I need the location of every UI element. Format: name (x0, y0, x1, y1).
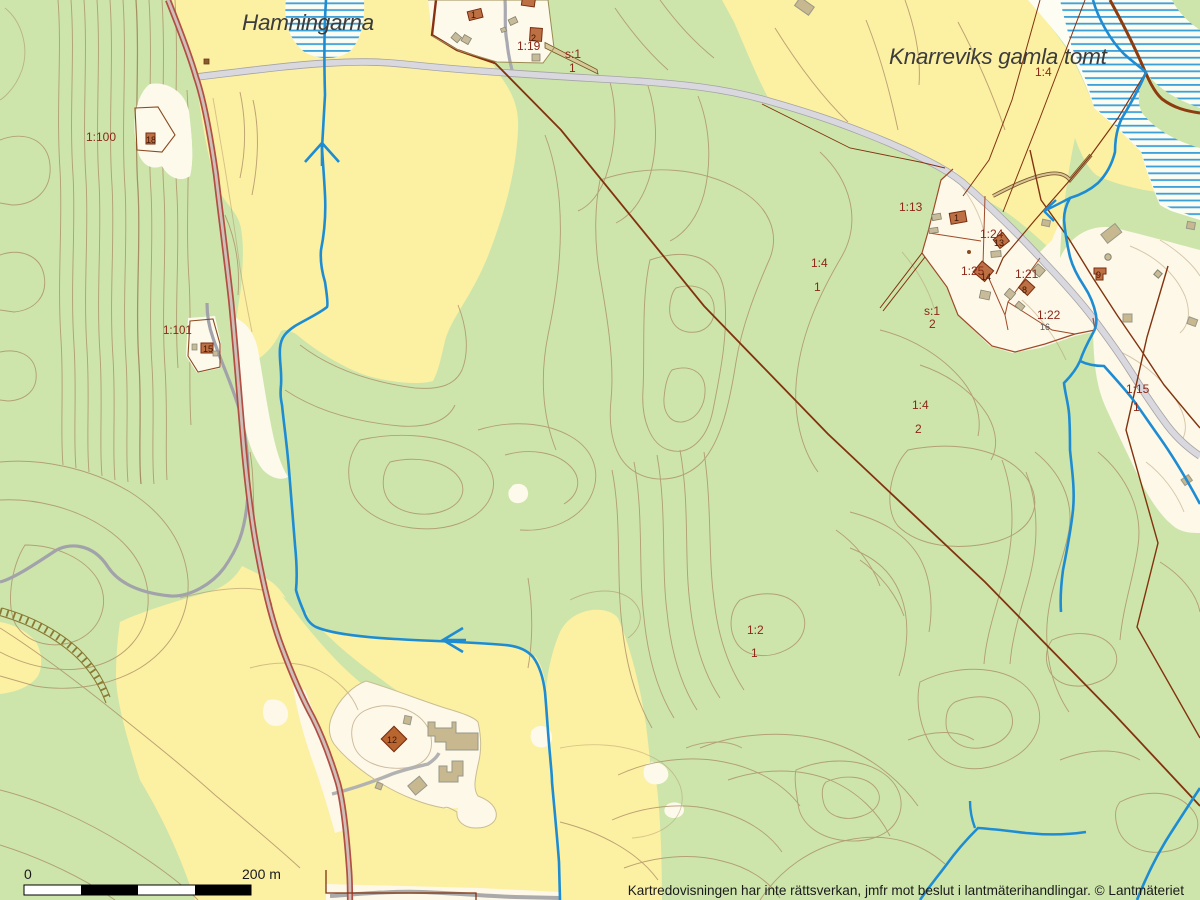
svg-text:18: 18 (146, 135, 156, 145)
svg-text:1: 1 (814, 280, 821, 294)
svg-text:2: 2 (531, 33, 536, 43)
svg-text:1: 1 (569, 61, 576, 75)
svg-text:Kartredovisningen har inte rät: Kartredovisningen har inte rättsverkan, … (628, 883, 1185, 898)
svg-text:1:21: 1:21 (1015, 267, 1039, 281)
svg-text:200 m: 200 m (242, 866, 281, 882)
svg-text:1:100: 1:100 (86, 130, 116, 144)
svg-text:1: 1 (1133, 400, 1140, 414)
svg-text:Knarreviks gamla tomt: Knarreviks gamla tomt (889, 44, 1109, 69)
svg-text:1:4: 1:4 (1035, 65, 1052, 79)
svg-text:Hamningarna: Hamningarna (242, 10, 374, 35)
svg-text:8: 8 (1022, 285, 1027, 295)
svg-text:9: 9 (1096, 270, 1101, 280)
svg-text:2: 2 (915, 422, 922, 436)
svg-text:1:4: 1:4 (912, 398, 929, 412)
svg-text:1: 1 (471, 10, 476, 20)
svg-text:1: 1 (954, 213, 959, 223)
svg-text:12: 12 (387, 735, 397, 745)
svg-text:1:4: 1:4 (811, 256, 828, 270)
svg-text:1:2: 1:2 (747, 623, 764, 637)
svg-text:0: 0 (24, 866, 32, 882)
svg-text:s:1: s:1 (565, 47, 581, 61)
svg-text:2: 2 (929, 317, 936, 331)
svg-text:13: 13 (994, 238, 1004, 248)
svg-text:15: 15 (203, 344, 213, 354)
svg-text:1:13: 1:13 (899, 200, 923, 214)
svg-text:1:15: 1:15 (1126, 382, 1150, 396)
svg-text:s:1: s:1 (924, 304, 940, 318)
svg-text:1:22: 1:22 (1037, 308, 1061, 322)
svg-text:1: 1 (751, 646, 758, 660)
svg-text:14: 14 (981, 272, 991, 282)
svg-text:16: 16 (1040, 322, 1050, 332)
svg-text:1:101: 1:101 (163, 325, 192, 337)
svg-text:1:19: 1:19 (517, 39, 541, 53)
